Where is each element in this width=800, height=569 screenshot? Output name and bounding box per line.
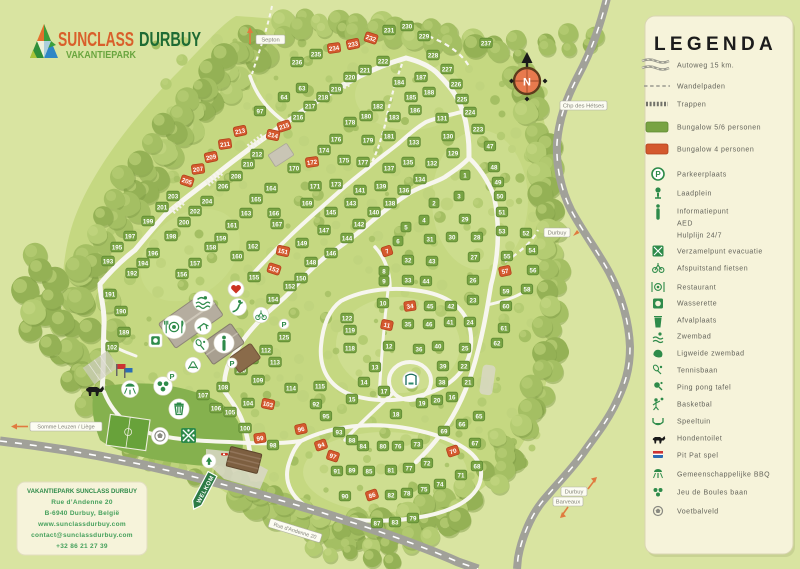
svg-text:135: 135 xyxy=(403,159,414,166)
svg-text:63: 63 xyxy=(299,85,306,92)
svg-text:223: 223 xyxy=(473,126,484,133)
svg-text:Parkeerplaats: Parkeerplaats xyxy=(677,172,727,179)
svg-text:160: 160 xyxy=(232,253,243,260)
svg-text:208: 208 xyxy=(231,173,242,180)
svg-text:228: 228 xyxy=(428,52,439,59)
svg-text:108: 108 xyxy=(218,384,229,391)
svg-text:40: 40 xyxy=(435,343,442,350)
svg-text:64: 64 xyxy=(281,94,288,101)
svg-text:221: 221 xyxy=(360,67,371,74)
svg-text:130: 130 xyxy=(443,133,454,140)
svg-text:175: 175 xyxy=(339,157,350,164)
svg-text:42: 42 xyxy=(448,303,455,310)
svg-text:14: 14 xyxy=(361,379,368,386)
svg-text:17: 17 xyxy=(381,388,388,395)
svg-text:74: 74 xyxy=(437,481,444,488)
svg-text:170: 170 xyxy=(289,165,300,172)
svg-text:36: 36 xyxy=(416,346,423,353)
svg-text:19: 19 xyxy=(419,400,426,407)
svg-text:P: P xyxy=(655,170,661,179)
svg-text:210: 210 xyxy=(243,161,254,168)
svg-text:112: 112 xyxy=(261,347,272,354)
svg-text:119: 119 xyxy=(345,327,356,334)
svg-text:Wandelpaden: Wandelpaden xyxy=(677,84,725,91)
svg-text:P: P xyxy=(281,320,286,329)
svg-text:230: 230 xyxy=(402,23,413,30)
svg-text:Verzamelpunt evacuatie: Verzamelpunt evacuatie xyxy=(677,249,763,256)
svg-text:39: 39 xyxy=(440,363,447,370)
svg-text:156: 156 xyxy=(177,271,188,278)
svg-text:83: 83 xyxy=(392,519,399,526)
svg-text:Voetbalveld: Voetbalveld xyxy=(677,509,719,516)
svg-text:162: 162 xyxy=(248,243,259,250)
svg-text:27: 27 xyxy=(471,254,478,261)
svg-text:+32 86 21 27 39: +32 86 21 27 39 xyxy=(56,543,108,550)
svg-text:Tennisbaan: Tennisbaan xyxy=(677,368,718,375)
svg-text:4: 4 xyxy=(422,217,426,224)
svg-text:203: 203 xyxy=(168,193,179,200)
svg-text:Pit Pat spel: Pit Pat spel xyxy=(677,453,718,460)
svg-text:235: 235 xyxy=(311,51,322,58)
svg-text:AED: AED xyxy=(677,221,693,228)
svg-text:22: 22 xyxy=(461,363,468,370)
svg-text:50: 50 xyxy=(497,193,504,200)
svg-text:219: 219 xyxy=(331,86,342,93)
svg-text:33: 33 xyxy=(405,277,412,284)
svg-text:134: 134 xyxy=(415,176,426,183)
svg-text:195: 195 xyxy=(112,244,123,251)
svg-text:43: 43 xyxy=(429,258,436,265)
svg-text:72: 72 xyxy=(424,460,431,467)
svg-text:199: 199 xyxy=(143,218,154,225)
svg-text:154: 154 xyxy=(268,296,279,303)
svg-text:47: 47 xyxy=(487,143,494,150)
svg-text:226: 226 xyxy=(451,81,462,88)
svg-text:Septon: Septon xyxy=(261,38,279,44)
svg-text:6: 6 xyxy=(396,238,400,245)
svg-text:225: 225 xyxy=(457,96,468,103)
svg-text:Jeu de Boules baan: Jeu de Boules baan xyxy=(677,490,748,497)
svg-text:Bungalow 5/6 personen: Bungalow 5/6 personen xyxy=(677,125,761,132)
svg-text:69: 69 xyxy=(441,428,448,435)
svg-text:227: 227 xyxy=(442,66,453,73)
svg-text:2: 2 xyxy=(432,200,436,207)
svg-text:173: 173 xyxy=(331,181,342,188)
svg-text:VAKANTIEPARK: VAKANTIEPARK xyxy=(66,50,137,61)
svg-text:20: 20 xyxy=(434,397,441,404)
svg-text:222: 222 xyxy=(378,58,389,65)
svg-text:Informatiepunt: Informatiepunt xyxy=(677,209,729,216)
svg-text:95: 95 xyxy=(323,413,330,420)
svg-text:178: 178 xyxy=(345,119,356,126)
svg-text:98: 98 xyxy=(270,442,277,449)
svg-text:234: 234 xyxy=(329,45,341,53)
svg-text:201: 201 xyxy=(157,204,168,211)
svg-text:13: 13 xyxy=(372,364,379,371)
svg-text:Hondentoilet: Hondentoilet xyxy=(677,436,722,443)
svg-text:88: 88 xyxy=(349,437,356,444)
svg-text:62: 62 xyxy=(494,340,501,347)
svg-text:Chp des Hétses: Chp des Hétses xyxy=(563,104,604,110)
svg-text:177: 177 xyxy=(358,159,369,166)
svg-text:180: 180 xyxy=(361,113,372,120)
svg-text:78: 78 xyxy=(404,490,411,497)
svg-text:www.sunclassdurbuy.com: www.sunclassdurbuy.com xyxy=(37,521,126,528)
svg-text:Afspuitstand fietsen: Afspuitstand fietsen xyxy=(677,266,748,273)
svg-text:Somme Leuzen / Liège: Somme Leuzen / Liège xyxy=(37,425,95,431)
svg-text:206: 206 xyxy=(218,183,229,190)
svg-text:Speeltuin: Speeltuin xyxy=(677,419,711,426)
svg-text:79: 79 xyxy=(410,515,417,522)
svg-text:97: 97 xyxy=(257,108,264,115)
svg-text:169: 169 xyxy=(302,200,313,207)
svg-text:18: 18 xyxy=(393,411,400,418)
svg-text:93: 93 xyxy=(336,429,343,436)
svg-text:Laadplein: Laadplein xyxy=(677,191,712,198)
svg-text:164: 164 xyxy=(266,185,277,192)
svg-text:Ping pong tafel: Ping pong tafel xyxy=(677,385,731,392)
svg-text:114: 114 xyxy=(286,385,297,392)
svg-text:25: 25 xyxy=(462,345,469,352)
svg-text:148: 148 xyxy=(306,259,317,266)
svg-text:82: 82 xyxy=(388,492,395,499)
svg-text:198: 198 xyxy=(166,233,177,240)
svg-text:107: 107 xyxy=(198,392,209,399)
svg-text:contact@sunclassdurbuy.com: contact@sunclassdurbuy.com xyxy=(31,532,133,539)
svg-text:38: 38 xyxy=(439,379,446,386)
svg-text:141: 141 xyxy=(355,187,366,194)
svg-text:217: 217 xyxy=(305,103,316,110)
svg-text:53: 53 xyxy=(499,228,506,235)
svg-text:186: 186 xyxy=(410,107,421,114)
svg-text:35: 35 xyxy=(405,321,412,328)
svg-text:59: 59 xyxy=(503,288,510,295)
svg-text:145: 145 xyxy=(326,209,337,216)
svg-text:76: 76 xyxy=(395,443,402,450)
svg-text:138: 138 xyxy=(385,200,396,207)
svg-text:220: 220 xyxy=(345,74,356,81)
svg-text:100: 100 xyxy=(240,425,251,432)
svg-text:167: 167 xyxy=(272,221,283,228)
svg-text:26: 26 xyxy=(470,277,477,284)
svg-text:32: 32 xyxy=(405,257,412,264)
svg-text:N: N xyxy=(523,77,531,89)
svg-text:139: 139 xyxy=(376,183,387,190)
svg-text:31: 31 xyxy=(427,236,434,243)
svg-text:92: 92 xyxy=(313,401,320,408)
svg-text:P: P xyxy=(169,372,174,381)
svg-text:87: 87 xyxy=(374,520,381,527)
svg-text:71: 71 xyxy=(458,472,465,479)
svg-text:21: 21 xyxy=(465,379,472,386)
svg-text:67: 67 xyxy=(472,440,479,447)
svg-text:Wasserette: Wasserette xyxy=(677,301,717,308)
svg-text:171: 171 xyxy=(310,183,321,190)
svg-text:77: 77 xyxy=(406,465,413,472)
svg-text:237: 237 xyxy=(481,40,492,47)
svg-text:196: 196 xyxy=(148,250,159,257)
svg-text:181: 181 xyxy=(384,133,395,140)
svg-text:224: 224 xyxy=(465,109,476,116)
svg-text:48: 48 xyxy=(491,164,498,171)
svg-text:143: 143 xyxy=(346,200,357,207)
svg-text:125: 125 xyxy=(279,334,290,341)
svg-text:142: 142 xyxy=(354,221,365,228)
svg-text:Trappen: Trappen xyxy=(677,102,706,109)
svg-text:28: 28 xyxy=(474,234,481,241)
svg-text:150: 150 xyxy=(296,275,307,282)
svg-text:106: 106 xyxy=(211,405,222,412)
svg-text:81: 81 xyxy=(388,467,395,474)
svg-text:157: 157 xyxy=(190,260,201,267)
svg-text:66: 66 xyxy=(459,421,466,428)
svg-text:Hulplijn 24/7: Hulplijn 24/7 xyxy=(677,233,722,240)
svg-text:218: 218 xyxy=(318,94,329,101)
svg-text:159: 159 xyxy=(216,235,227,242)
svg-text:136: 136 xyxy=(399,187,410,194)
svg-text:200: 200 xyxy=(179,219,190,226)
svg-text:131: 131 xyxy=(437,115,448,122)
svg-text:Barveaux: Barveaux xyxy=(556,500,581,506)
svg-text:194: 194 xyxy=(138,260,149,267)
svg-text:161: 161 xyxy=(227,222,238,229)
svg-text:3: 3 xyxy=(457,193,461,200)
svg-text:236: 236 xyxy=(292,59,303,66)
svg-text:231: 231 xyxy=(384,27,395,34)
svg-text:184: 184 xyxy=(394,79,405,86)
svg-text:149: 149 xyxy=(297,240,308,247)
svg-text:73: 73 xyxy=(414,441,421,448)
svg-text:51: 51 xyxy=(499,209,506,216)
svg-text:41: 41 xyxy=(447,319,454,326)
svg-text:24: 24 xyxy=(467,319,474,326)
svg-text:147: 147 xyxy=(319,227,330,234)
svg-text:46: 46 xyxy=(426,321,433,328)
svg-text:Zwembad: Zwembad xyxy=(677,334,711,341)
svg-text:23: 23 xyxy=(470,297,477,304)
svg-text:216: 216 xyxy=(293,114,304,121)
svg-text:8: 8 xyxy=(382,268,386,275)
svg-text:Autoweg 15 km.: Autoweg 15 km. xyxy=(677,63,734,70)
svg-text:54: 54 xyxy=(529,247,536,254)
svg-text:44: 44 xyxy=(423,278,430,285)
svg-text:P: P xyxy=(229,359,234,368)
svg-text:49: 49 xyxy=(495,179,502,186)
svg-text:B-6940 Durbuy, België: B-6940 Durbuy, België xyxy=(45,510,120,517)
svg-text:10: 10 xyxy=(380,300,387,307)
svg-text:LEGENDA: LEGENDA xyxy=(654,34,777,55)
svg-text:29: 29 xyxy=(462,216,469,223)
svg-text:197: 197 xyxy=(125,233,136,240)
svg-text:Rue d’Andenne 20: Rue d’Andenne 20 xyxy=(51,499,113,506)
svg-text:85: 85 xyxy=(366,468,373,475)
svg-text:45: 45 xyxy=(427,303,434,310)
svg-text:188: 188 xyxy=(424,89,435,96)
svg-text:166: 166 xyxy=(269,210,280,217)
svg-text:189: 189 xyxy=(119,329,130,336)
svg-text:229: 229 xyxy=(419,33,430,40)
svg-text:113: 113 xyxy=(270,359,281,366)
svg-text:174: 174 xyxy=(319,147,330,154)
svg-text:122: 122 xyxy=(342,315,353,322)
svg-text:163: 163 xyxy=(241,210,252,217)
svg-text:132: 132 xyxy=(427,160,438,167)
svg-text:192: 192 xyxy=(127,270,138,277)
svg-text:152: 152 xyxy=(285,283,296,290)
svg-text:211: 211 xyxy=(220,141,231,149)
svg-text:60: 60 xyxy=(503,303,510,310)
svg-text:12: 12 xyxy=(386,343,393,350)
svg-text:Gemeenschappelijke BBQ: Gemeenschappelijke BBQ xyxy=(677,472,770,479)
svg-text:115: 115 xyxy=(315,383,326,390)
svg-text:Afvalplaats: Afvalplaats xyxy=(677,318,717,325)
svg-text:61: 61 xyxy=(501,325,508,332)
svg-text:193: 193 xyxy=(103,258,114,265)
svg-text:58: 58 xyxy=(524,286,531,293)
svg-text:55: 55 xyxy=(504,253,511,260)
svg-text:207: 207 xyxy=(193,166,205,174)
svg-text:VAKANTIEPARK SUNCLASS DURBUY: VAKANTIEPARK SUNCLASS DURBUY xyxy=(27,488,137,495)
svg-text:185: 185 xyxy=(406,94,417,101)
svg-text:Durbuy: Durbuy xyxy=(548,231,567,237)
svg-text:155: 155 xyxy=(249,274,260,281)
svg-text:165: 165 xyxy=(251,196,262,203)
svg-text:172: 172 xyxy=(307,159,319,167)
svg-text:109: 109 xyxy=(253,377,264,384)
svg-text:Ligweide zwembad: Ligweide zwembad xyxy=(677,351,745,358)
svg-text:182: 182 xyxy=(373,103,384,110)
svg-text:16: 16 xyxy=(449,394,456,401)
svg-text:Bungalow 4 personen: Bungalow 4 personen xyxy=(677,147,754,154)
svg-text:56: 56 xyxy=(530,267,537,274)
svg-text:212: 212 xyxy=(252,151,263,158)
svg-text:202: 202 xyxy=(190,208,201,215)
svg-text:183: 183 xyxy=(389,114,400,121)
svg-text:84: 84 xyxy=(360,443,367,450)
svg-text:Basketbal: Basketbal xyxy=(677,402,712,409)
svg-text:105: 105 xyxy=(225,409,236,416)
svg-text:5: 5 xyxy=(404,224,408,231)
svg-text:129: 129 xyxy=(448,150,459,157)
svg-text:80: 80 xyxy=(380,443,387,450)
svg-text:91: 91 xyxy=(334,468,341,475)
svg-text:102: 102 xyxy=(107,344,118,351)
svg-text:15: 15 xyxy=(349,396,356,403)
svg-text:137: 137 xyxy=(384,165,395,172)
svg-text:190: 190 xyxy=(116,308,127,315)
svg-text:30: 30 xyxy=(449,234,456,241)
svg-text:158: 158 xyxy=(206,244,217,251)
svg-text:118: 118 xyxy=(345,345,356,352)
svg-text:191: 191 xyxy=(105,291,116,298)
svg-text:179: 179 xyxy=(363,137,374,144)
svg-text:144: 144 xyxy=(342,235,353,242)
svg-text:9: 9 xyxy=(382,278,386,285)
svg-text:89: 89 xyxy=(349,467,356,474)
svg-text:Durbuy: Durbuy xyxy=(565,490,584,496)
svg-text:68: 68 xyxy=(474,463,481,470)
svg-text:104: 104 xyxy=(243,400,254,407)
svg-text:140: 140 xyxy=(369,209,380,216)
svg-text:65: 65 xyxy=(476,413,483,420)
svg-text:1: 1 xyxy=(463,172,467,179)
svg-text:DURBUY: DURBUY xyxy=(139,29,201,51)
svg-text:133: 133 xyxy=(409,139,420,146)
svg-text:187: 187 xyxy=(416,74,427,81)
svg-text:75: 75 xyxy=(421,486,428,493)
svg-text:52: 52 xyxy=(523,230,530,237)
svg-text:90: 90 xyxy=(342,493,349,500)
svg-text:SUNCLASS: SUNCLASS xyxy=(58,29,134,51)
svg-text:204: 204 xyxy=(202,198,213,205)
svg-text:Restaurant: Restaurant xyxy=(677,285,716,292)
svg-text:176: 176 xyxy=(331,136,342,143)
svg-text:146: 146 xyxy=(326,250,337,257)
